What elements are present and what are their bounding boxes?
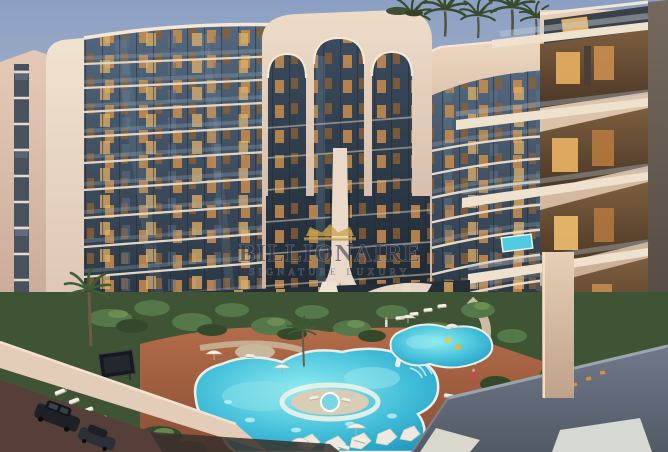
tower-pillar [542, 252, 574, 398]
watermark-brand-text: BILLIONAIRE [239, 240, 422, 267]
left-main-building [84, 24, 284, 324]
watermark-tagline-text: SIGNATURE LUXURY [249, 268, 410, 278]
balcony-plunge-pool [501, 234, 532, 252]
listing-photo: BILLIONAIRE SIGNATURE LUXURY [0, 0, 668, 452]
secondary-pool [391, 324, 493, 367]
render-scene: BILLIONAIRE SIGNATURE LUXURY [0, 0, 668, 452]
